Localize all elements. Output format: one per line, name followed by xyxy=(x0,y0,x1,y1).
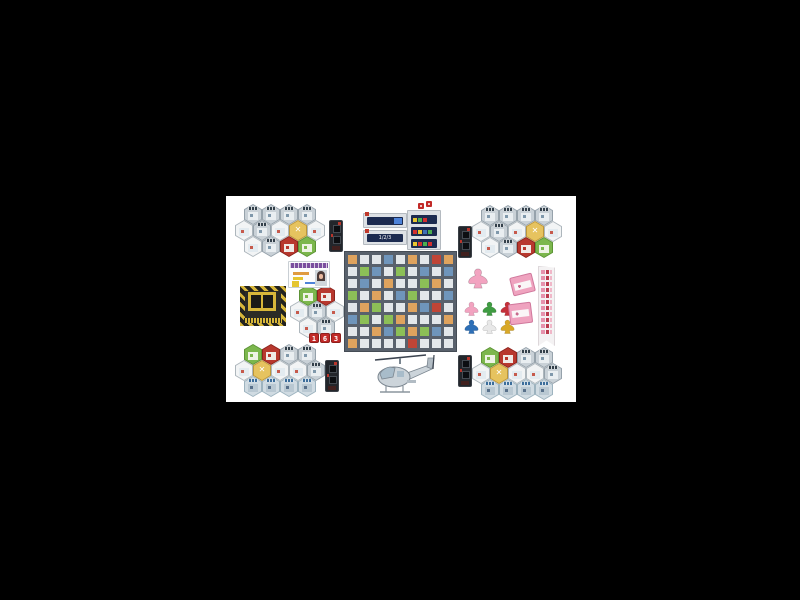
tower-piece-bottom-left[interactable] xyxy=(325,360,339,392)
hex-art-detail xyxy=(304,386,307,389)
hex-caption-band xyxy=(311,363,321,366)
tower-window xyxy=(329,376,337,384)
tail-rotor-icon xyxy=(433,355,434,369)
red-die-small[interactable] xyxy=(418,203,424,209)
hex-art-detail xyxy=(250,214,253,217)
banner-icon xyxy=(550,294,552,298)
hex-art-detail xyxy=(550,373,553,376)
dispatch-die-slot[interactable] xyxy=(428,230,432,234)
city-block-gray xyxy=(420,255,429,264)
hex-art-detail xyxy=(286,214,289,217)
id-card-blue-strip xyxy=(305,282,315,284)
hex-art-detail xyxy=(304,354,307,357)
hex-art-detail xyxy=(286,386,289,389)
city-block-gray xyxy=(432,291,441,300)
dispatch-die-slot[interactable] xyxy=(423,230,427,234)
city-block-green xyxy=(396,327,405,336)
hazard-sign-window xyxy=(263,295,273,308)
banner-row xyxy=(541,270,552,274)
hex-art-detail xyxy=(487,357,490,360)
city-block-gray xyxy=(384,339,393,348)
city-block-gray xyxy=(372,339,381,348)
city-block-tan xyxy=(396,315,405,324)
banner-icon xyxy=(546,270,549,274)
city-block-blue xyxy=(348,315,357,324)
city-block-green xyxy=(396,267,405,276)
hex-art-detail xyxy=(241,370,244,373)
city-block-gray xyxy=(384,291,393,300)
banner-icon xyxy=(541,306,545,310)
banner-row xyxy=(541,294,552,298)
banner-row xyxy=(541,324,552,328)
banner-icon xyxy=(550,318,552,322)
hex-art-detail xyxy=(250,386,253,389)
hex-art-detail xyxy=(332,311,335,314)
hex-art-detail xyxy=(478,231,481,234)
red-die[interactable]: 6 xyxy=(320,333,330,343)
banner-icon xyxy=(541,288,545,292)
hex-art-detail xyxy=(277,230,280,233)
hex-caption-band xyxy=(312,304,322,307)
dispatch-die-slot[interactable] xyxy=(428,242,432,246)
game-table-scene: ✕ ✕ ✕ ✕ 1/2/3 xyxy=(0,0,800,600)
meeple-large[interactable] xyxy=(466,266,490,290)
banner-icon xyxy=(541,312,545,316)
hex-caption-band xyxy=(266,239,276,242)
red-die[interactable]: 1 xyxy=(309,333,319,343)
city-block-gray xyxy=(444,303,453,312)
id-card-accent-bar xyxy=(293,272,309,275)
banner-icon xyxy=(546,318,549,322)
dispatch-die-slot[interactable] xyxy=(423,218,427,222)
hex-art-detail xyxy=(295,370,298,373)
city-block-gray xyxy=(360,327,369,336)
dispatch-card-2[interactable]: 1/2/3 xyxy=(363,230,407,245)
city-block-blue xyxy=(444,291,453,300)
hex-art-detail xyxy=(323,327,326,330)
city-block-blue xyxy=(420,303,429,312)
hex-art-detail xyxy=(532,373,535,376)
id-card-portrait xyxy=(315,270,327,286)
tower-piece-bottom-right[interactable] xyxy=(458,355,472,387)
staff-id-card[interactable] xyxy=(288,261,330,288)
banner-row xyxy=(541,276,552,280)
city-block-gray xyxy=(372,279,381,288)
tower-window xyxy=(333,236,341,244)
dispatch-die-slot[interactable] xyxy=(423,242,427,246)
hex-art-detail xyxy=(286,246,289,249)
banner-icon xyxy=(546,294,549,298)
city-block-blue xyxy=(384,255,393,264)
tower-base xyxy=(332,246,340,250)
banner-row xyxy=(541,282,552,286)
tower-red-accent xyxy=(460,240,462,243)
city-block-gray xyxy=(432,315,441,324)
hex-art-detail xyxy=(305,327,308,330)
city-block-gray xyxy=(348,303,357,312)
hex-art-detail xyxy=(268,246,271,249)
city-block-green xyxy=(420,327,429,336)
red-die[interactable]: 3 xyxy=(331,333,341,343)
tower-red-accent xyxy=(460,369,462,372)
hex-art-detail xyxy=(523,215,526,218)
id-card-header xyxy=(290,263,328,268)
id-card-badge-square xyxy=(292,281,299,287)
dispatch-card-2-bar: 1/2/3 xyxy=(367,234,403,242)
hex-art-detail xyxy=(541,357,544,360)
hex-art-detail xyxy=(505,215,508,218)
city-block-red xyxy=(408,339,417,348)
tower-red-accent xyxy=(467,357,470,360)
hex-caption-band xyxy=(284,207,294,210)
hex-art-detail xyxy=(523,357,526,360)
hex-caption-band xyxy=(503,208,513,211)
tower-piece-top-right[interactable] xyxy=(458,226,472,258)
hex-caption-band xyxy=(248,379,258,382)
hex-caption-band xyxy=(539,208,549,211)
hazard-caption-strip xyxy=(244,318,282,323)
red-cube-marker[interactable] xyxy=(365,229,369,233)
banner-icon xyxy=(541,282,545,286)
tower-window xyxy=(462,371,470,379)
hex-caption-band xyxy=(494,224,504,227)
banner-icon xyxy=(550,306,552,310)
banner-icon xyxy=(541,294,545,298)
hex-caption-band xyxy=(284,347,294,350)
meeple[interactable] xyxy=(481,318,498,335)
city-block-gray xyxy=(420,339,429,348)
dispatch-slot-row xyxy=(411,215,437,224)
hex-art-detail xyxy=(304,246,307,249)
city-block-blue xyxy=(420,267,429,276)
side-step xyxy=(407,380,416,383)
red-cube-marker[interactable] xyxy=(365,212,369,216)
banner-icon xyxy=(546,276,549,280)
dispatch-die-slot[interactable] xyxy=(418,230,422,234)
meeple[interactable] xyxy=(481,300,498,317)
banner-icon xyxy=(541,300,545,304)
hex-caption-band xyxy=(521,382,531,385)
tower-red-accent xyxy=(467,228,470,231)
city-block-gray xyxy=(360,255,369,264)
dispatch-slot-row xyxy=(411,239,437,248)
city-block-gray xyxy=(372,315,381,324)
banner-icon xyxy=(550,276,552,280)
hex-art-detail xyxy=(505,357,508,360)
hex-art-detail xyxy=(523,389,526,392)
city-block-tan xyxy=(372,291,381,300)
pink-card-stack[interactable] xyxy=(508,302,533,326)
hex-art-detail xyxy=(313,370,316,373)
screen-icon xyxy=(394,218,402,224)
city-block-tan xyxy=(444,315,453,324)
hex-art-detail xyxy=(296,311,299,314)
city-block-gray xyxy=(348,327,357,336)
tower-red-accent xyxy=(334,362,337,365)
photo-background: ✕ ✕ ✕ ✕ 1/2/3 xyxy=(226,196,576,402)
hex-caption-band xyxy=(503,382,513,385)
tower-base xyxy=(328,386,336,390)
door-window xyxy=(397,371,404,377)
hazard-tile[interactable] xyxy=(240,286,286,326)
city-block-gray xyxy=(396,303,405,312)
city-block-tan xyxy=(372,327,381,336)
city-block-gray xyxy=(420,291,429,300)
banner-icon xyxy=(550,300,552,304)
city-block-gray xyxy=(384,303,393,312)
city-block-tan xyxy=(444,255,453,264)
city-block-gray xyxy=(420,315,429,324)
dispatch-die-slot[interactable] xyxy=(413,242,417,246)
hex-glyph: ✕ xyxy=(289,225,307,235)
hex-caption-band xyxy=(539,350,549,353)
city-block-green xyxy=(408,291,417,300)
hex-art-detail xyxy=(241,230,244,233)
hex-caption-band xyxy=(485,382,495,385)
banner-icon xyxy=(546,288,549,292)
banner-row xyxy=(541,288,552,292)
city-block-gray xyxy=(360,339,369,348)
stack-label-band xyxy=(514,280,532,291)
hex-caption-band xyxy=(266,207,276,210)
tower-red-accent xyxy=(338,222,341,225)
city-block-gray xyxy=(408,279,417,288)
city-block-tan xyxy=(408,327,417,336)
hex-art-detail xyxy=(505,247,508,250)
tower-base xyxy=(461,381,469,385)
hex-caption-band xyxy=(539,382,549,385)
banner-icon xyxy=(546,324,549,328)
hex-art-detail xyxy=(514,231,517,234)
cockpit-window xyxy=(380,367,395,379)
hex-art-detail xyxy=(304,214,307,217)
tower-window xyxy=(462,242,470,250)
hex-art-detail xyxy=(268,386,271,389)
city-block-gray xyxy=(348,267,357,276)
city-block-tan xyxy=(384,279,393,288)
hex-art-detail xyxy=(550,231,553,234)
id-card-accent-bar xyxy=(293,277,303,280)
hex-caption-band xyxy=(302,347,312,350)
rotor-mast xyxy=(399,358,401,364)
hex-art-detail xyxy=(514,373,517,376)
tower-red-accent xyxy=(327,374,329,377)
city-block-gray xyxy=(444,339,453,348)
city-block-blue xyxy=(372,267,381,276)
hex-caption-band xyxy=(284,379,294,382)
tower-red-accent xyxy=(331,234,333,237)
banner-icon xyxy=(541,270,545,274)
city-block-tan xyxy=(408,255,417,264)
banner-icon xyxy=(550,324,552,328)
banner-icon xyxy=(541,330,545,334)
tower-window xyxy=(462,231,470,239)
hex-art-detail xyxy=(505,389,508,392)
hex-caption-band xyxy=(521,350,531,353)
city-block-gray xyxy=(372,255,381,264)
hex-art-detail xyxy=(277,370,280,373)
banner-icon xyxy=(541,276,545,280)
hex-caption-band xyxy=(321,320,331,323)
hex-caption-band xyxy=(257,223,267,226)
red-die-small[interactable] xyxy=(426,201,432,207)
hex-art-detail xyxy=(478,373,481,376)
dispatch-die-slot[interactable] xyxy=(413,230,417,234)
city-block-blue xyxy=(360,279,369,288)
tower-window xyxy=(333,225,341,233)
hex-caption-band xyxy=(548,366,558,369)
city-block-gray xyxy=(384,267,393,276)
dispatch-card-1[interactable] xyxy=(363,213,407,228)
hazard-sign-frame xyxy=(248,292,276,311)
hex-art-detail xyxy=(259,230,262,233)
hex-art-detail xyxy=(541,389,544,392)
hex-caption-band xyxy=(266,379,276,382)
city-block-red xyxy=(432,303,441,312)
helicopter-miniature[interactable] xyxy=(374,350,436,396)
hex-caption-band xyxy=(302,379,312,382)
dispatch-slot-row xyxy=(411,227,437,236)
city-map-board[interactable] xyxy=(344,251,457,352)
city-block-gray xyxy=(348,279,357,288)
banner-icon xyxy=(546,300,549,304)
city-block-tan xyxy=(408,303,417,312)
city-block-green xyxy=(360,267,369,276)
hex-art-detail xyxy=(305,295,308,298)
hex-caption-band xyxy=(248,207,258,210)
scoring-banner-strip[interactable] xyxy=(538,266,555,346)
hex-art-detail xyxy=(541,247,544,250)
city-block-gray xyxy=(396,255,405,264)
city-block-blue xyxy=(444,267,453,276)
city-block-gray xyxy=(408,315,417,324)
banner-row xyxy=(541,330,552,334)
city-block-green xyxy=(384,315,393,324)
dispatch-die-slot[interactable] xyxy=(418,242,422,246)
city-block-gray xyxy=(444,327,453,336)
hex-art-detail xyxy=(496,231,499,234)
dispatch-die-slot[interactable] xyxy=(418,218,422,222)
hazard-sign-window xyxy=(251,295,261,308)
tower-window xyxy=(329,365,337,373)
tower-window xyxy=(462,360,470,368)
hex-art-detail xyxy=(523,247,526,250)
hex-art-detail xyxy=(268,354,271,357)
city-block-tan xyxy=(360,303,369,312)
banner-icon xyxy=(546,312,549,316)
city-block-gray xyxy=(444,279,453,288)
tower-piece-top-left[interactable] xyxy=(329,220,343,252)
city-block-green xyxy=(372,303,381,312)
city-block-blue xyxy=(432,327,441,336)
hex-caption-band xyxy=(521,208,531,211)
city-block-blue xyxy=(384,327,393,336)
banner-icon xyxy=(550,312,552,316)
hex-art-detail xyxy=(313,230,316,233)
city-block-gray xyxy=(396,339,405,348)
hex-glyph: ✕ xyxy=(253,365,271,375)
banner-icon xyxy=(541,318,545,322)
hex-caption-band xyxy=(503,240,513,243)
city-block-gray xyxy=(396,279,405,288)
hex-caption-band xyxy=(302,207,312,210)
hex-glyph: ✕ xyxy=(526,226,544,236)
hex-art-detail xyxy=(541,215,544,218)
hex-art-detail xyxy=(323,295,326,298)
banner-icon xyxy=(546,306,549,310)
dispatch-die-slot[interactable] xyxy=(413,218,417,222)
hex-art-detail xyxy=(286,354,289,357)
pink-card-stack[interactable] xyxy=(509,273,536,297)
banner-row xyxy=(541,306,552,310)
city-block-tan xyxy=(432,279,441,288)
hex-art-detail xyxy=(487,247,490,250)
meeple[interactable] xyxy=(463,318,480,335)
city-block-tan xyxy=(348,255,357,264)
banner-icon xyxy=(550,282,552,286)
city-block-tan xyxy=(348,339,357,348)
portrait-face xyxy=(319,274,323,279)
city-block-gray xyxy=(360,291,369,300)
hex-art-detail xyxy=(487,215,490,218)
city-block-green xyxy=(348,291,357,300)
stack-label-band xyxy=(512,309,530,318)
city-block-gray xyxy=(408,267,417,276)
banner-icon xyxy=(546,330,549,334)
meeple[interactable] xyxy=(463,300,480,317)
city-block-green xyxy=(360,315,369,324)
hex-glyph: ✕ xyxy=(490,368,508,378)
banner-row xyxy=(541,312,552,316)
banner-icon xyxy=(550,330,552,334)
hex-art-detail xyxy=(268,214,271,217)
city-block-blue xyxy=(396,291,405,300)
hex-art-detail xyxy=(314,311,317,314)
city-block-green xyxy=(420,279,429,288)
city-block-red xyxy=(432,255,441,264)
tower-base xyxy=(461,252,469,256)
dispatch-card-1-bar xyxy=(367,217,403,225)
banner-icon xyxy=(550,270,552,274)
banner-row xyxy=(541,300,552,304)
hex-art-detail xyxy=(487,389,490,392)
dispatch-board[interactable] xyxy=(407,210,441,250)
banner-icon xyxy=(541,324,545,328)
banner-row xyxy=(541,318,552,322)
city-block-gray xyxy=(432,267,441,276)
city-block-gray xyxy=(432,339,441,348)
hex-caption-band xyxy=(485,208,495,211)
hex-art-detail xyxy=(250,354,253,357)
hex-art-detail xyxy=(250,246,253,249)
dispatch-card-2-label: 1/2/3 xyxy=(371,235,400,241)
banner-icon xyxy=(550,288,552,292)
banner-icon xyxy=(546,282,549,286)
